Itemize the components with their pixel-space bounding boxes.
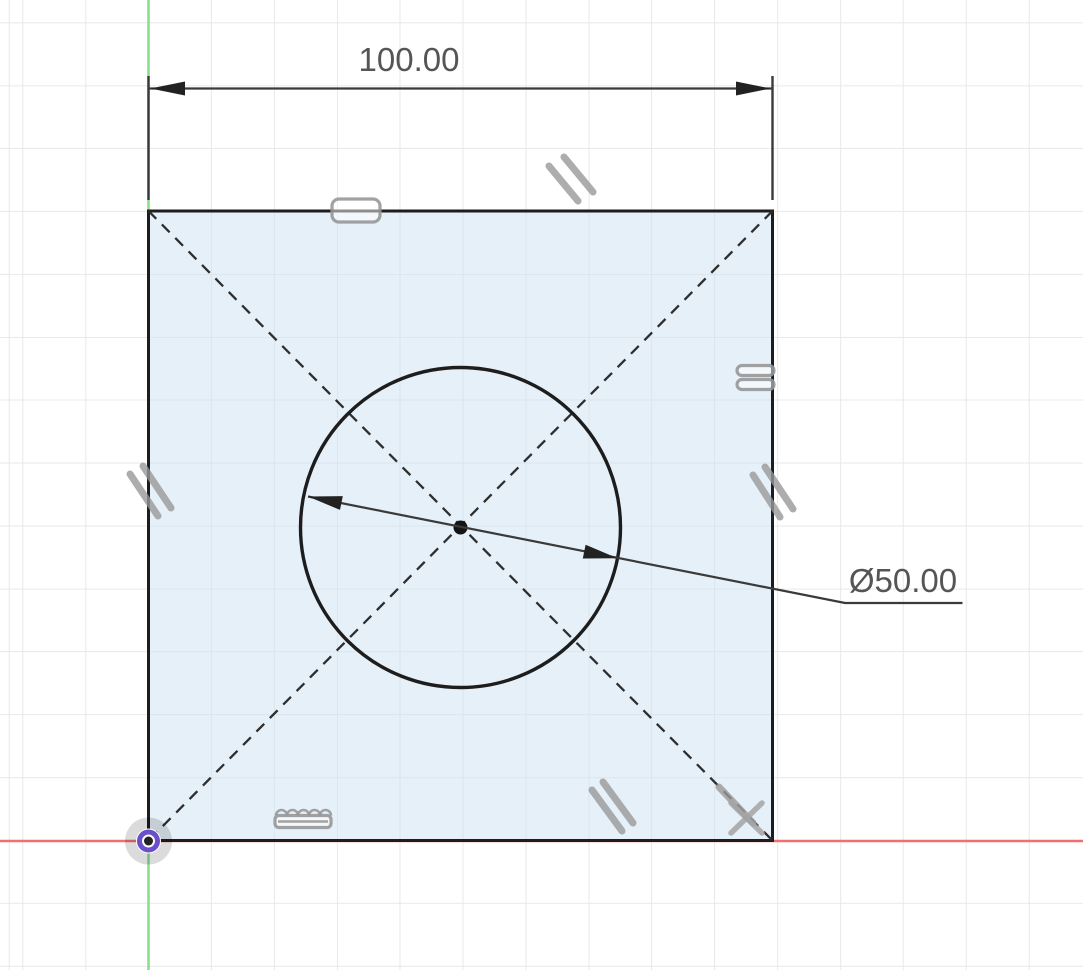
parallel-slashes-icon[interactable]: [549, 157, 593, 201]
origin-point-icon[interactable]: [144, 837, 153, 846]
origin-marker[interactable]: [125, 818, 172, 865]
sketch-canvas[interactable]: 100.00 Ø50.00: [0, 0, 1083, 970]
dimension-value-diameter[interactable]: Ø50.00: [849, 562, 957, 599]
linear-dimension-100[interactable]: 100.00: [149, 41, 773, 200]
sketch-svg: 100.00 Ø50.00: [0, 0, 1083, 970]
dimension-arrow-left-icon: [151, 82, 186, 96]
horizontal-bar-icon[interactable]: [332, 199, 380, 222]
dimension-value-100[interactable]: 100.00: [359, 41, 460, 78]
dimension-arrow-right-icon: [736, 82, 771, 96]
